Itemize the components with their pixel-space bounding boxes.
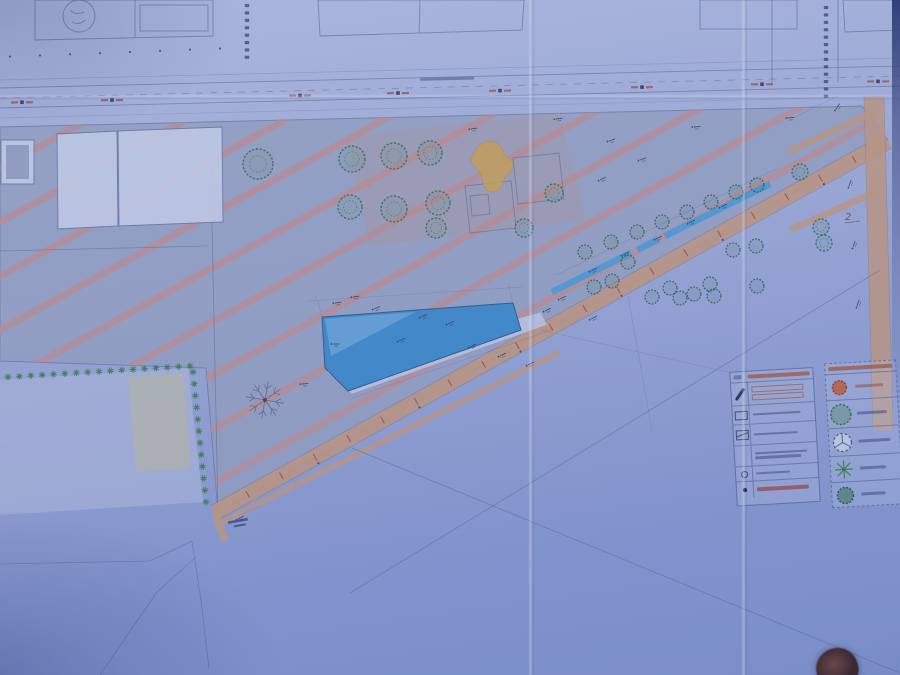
legend-empty-cell xyxy=(735,446,753,467)
tree-icon xyxy=(338,195,362,219)
zone-label: 2 xyxy=(845,212,851,223)
rect-outline-icon xyxy=(732,406,750,425)
road-markers-group xyxy=(11,80,889,104)
tree-icon xyxy=(673,291,687,305)
tree-icon xyxy=(645,290,659,304)
hedge-shrub-icon xyxy=(192,403,201,412)
tree-icon xyxy=(426,191,450,215)
dimension-mark xyxy=(851,241,857,251)
tree-icon xyxy=(813,219,829,235)
street-name-smudge xyxy=(245,34,249,37)
legend-label-smudge xyxy=(852,381,896,390)
hedge-shrub-icon xyxy=(201,497,211,507)
building-plot xyxy=(118,127,223,226)
hedge-shrub-icon xyxy=(193,415,202,424)
shrub-star-icon xyxy=(830,456,857,482)
tree-icon xyxy=(707,289,721,303)
road-marker-icon xyxy=(289,94,311,98)
building-block xyxy=(318,0,524,36)
tree-icon xyxy=(381,196,407,222)
street-name-smudge xyxy=(824,95,828,98)
street-name-smudge xyxy=(824,80,828,83)
road-marker-icon xyxy=(489,89,511,93)
tree-icon xyxy=(578,245,592,259)
tree-icon xyxy=(680,205,694,219)
legend-row xyxy=(826,370,897,400)
road-marker-icon xyxy=(631,85,653,89)
street-name-smudge xyxy=(824,43,828,46)
survey-dot xyxy=(39,54,41,56)
tree-icon xyxy=(621,255,635,269)
legend-label-smudge xyxy=(854,408,898,417)
tree-icon xyxy=(816,235,832,251)
dimension-mark xyxy=(855,300,861,310)
street-name-smudge xyxy=(824,50,828,53)
legend-label-smudge xyxy=(748,381,814,403)
road-marker-icon xyxy=(387,91,409,95)
street-name-smudge xyxy=(824,65,828,68)
street-name-smudge xyxy=(245,56,249,59)
legend-label-smudge xyxy=(750,408,815,418)
legend-label-smudge xyxy=(754,482,819,493)
tree-icon xyxy=(687,287,701,301)
building-plot xyxy=(57,131,118,229)
street-name-smudge xyxy=(824,6,828,9)
hedge-shrub-icon xyxy=(197,451,205,459)
survey-dot xyxy=(129,51,131,53)
tick-dot xyxy=(418,406,420,408)
blueprint-photo: 2 xyxy=(0,0,900,675)
building-block xyxy=(35,0,213,40)
survey-dot xyxy=(189,49,191,51)
legend-label-smudge xyxy=(751,428,816,438)
survey-dot xyxy=(219,47,221,49)
hedge-shrub-icon xyxy=(5,374,12,381)
legend xyxy=(727,355,900,514)
dimension-mark xyxy=(588,315,597,322)
black-dot-icon xyxy=(737,482,755,499)
street-name-smudge xyxy=(824,87,828,90)
street-name-smudge xyxy=(245,48,249,51)
legend-label-smudge xyxy=(855,436,899,445)
hedge-shrub-icon xyxy=(189,379,199,389)
road-marker-icon xyxy=(101,98,123,102)
tick-dot xyxy=(520,350,522,352)
frontage-dots-group xyxy=(9,47,221,57)
site-plan-drawing: 2 xyxy=(0,0,900,675)
small-circle-icon xyxy=(736,467,754,482)
building-block xyxy=(700,0,797,29)
legend-label-smudge xyxy=(858,489,900,498)
legend-table-planting xyxy=(824,359,900,508)
street-name-smudge xyxy=(824,21,828,24)
legend-row xyxy=(827,396,898,428)
road-marker-icon xyxy=(867,80,889,84)
tree-red-icon xyxy=(826,374,853,400)
street-name-smudge xyxy=(824,58,828,61)
tree-icon xyxy=(655,215,669,229)
tree-outline-icon xyxy=(829,428,856,456)
building-divider xyxy=(419,0,420,33)
tick-dot xyxy=(317,462,319,464)
tree-icon xyxy=(729,185,743,199)
tree-icon xyxy=(792,164,808,180)
building-courtyard xyxy=(6,145,29,179)
link-path xyxy=(790,192,876,230)
upper-buildings-group xyxy=(35,0,900,84)
tree-icon xyxy=(243,149,273,179)
legend-row xyxy=(832,478,900,508)
legend-label-smudge xyxy=(857,463,900,472)
legend-label-smudge xyxy=(752,446,818,461)
legend-header-cell-smudge xyxy=(734,375,742,380)
street-name-smudge xyxy=(245,19,249,22)
tree-icon xyxy=(605,274,619,288)
survey-dot xyxy=(99,52,101,54)
hedge-shrub-icon xyxy=(191,391,199,399)
legend-row xyxy=(829,424,900,456)
street-name-smudge xyxy=(245,26,249,29)
tick-dot xyxy=(823,183,825,185)
tick-dot xyxy=(621,295,623,297)
legend-table-materials xyxy=(729,367,820,506)
tick-dot xyxy=(722,239,724,241)
tree-green-large-icon xyxy=(827,400,854,428)
hatched-rect-icon xyxy=(733,425,751,446)
slope-line-icon xyxy=(731,383,749,406)
street-name-smudge xyxy=(245,41,249,44)
tree-icon xyxy=(749,239,763,253)
tree-icon xyxy=(418,141,442,165)
tree-icon xyxy=(726,243,740,257)
legend-row xyxy=(830,452,900,482)
tree-icon xyxy=(630,225,644,239)
street-name-smudge xyxy=(245,4,249,7)
tree-icon xyxy=(339,146,365,172)
survey-dot xyxy=(9,56,11,58)
legend-label-smudge xyxy=(753,467,818,477)
tree-icon xyxy=(587,280,601,294)
survey-dot xyxy=(159,50,161,52)
tree-icon xyxy=(545,184,563,202)
street-name-smudge xyxy=(824,28,828,31)
tree-icon xyxy=(750,178,764,192)
tree-icon xyxy=(704,195,718,209)
hedge-shrub-icon xyxy=(201,486,209,494)
road-marker-icon xyxy=(11,100,33,104)
street-name-smudge xyxy=(245,11,249,14)
yellow-strip-area xyxy=(128,373,191,472)
tree-icon xyxy=(426,218,446,238)
building-block xyxy=(843,0,900,32)
tree-icon xyxy=(515,219,533,237)
building-inner xyxy=(140,5,208,31)
survey-dot xyxy=(69,53,71,55)
tree-icon xyxy=(750,279,764,293)
hedge-shrub-icon xyxy=(195,427,202,434)
street-name-smudge xyxy=(824,36,828,39)
street-name-smudge xyxy=(824,73,828,76)
emblem-scribble xyxy=(70,10,85,24)
street-name-smudge xyxy=(824,13,828,16)
hedge-shrub-icon xyxy=(190,369,197,376)
path-tip xyxy=(215,512,225,541)
tree-dark-green-icon xyxy=(832,482,859,508)
tree-icon xyxy=(381,143,407,169)
vertical-text-smudges xyxy=(245,4,828,98)
emblem-circle xyxy=(63,0,95,32)
tree-icon xyxy=(604,235,618,249)
dimension-mark xyxy=(847,180,853,190)
road-marker-icon xyxy=(751,82,773,86)
